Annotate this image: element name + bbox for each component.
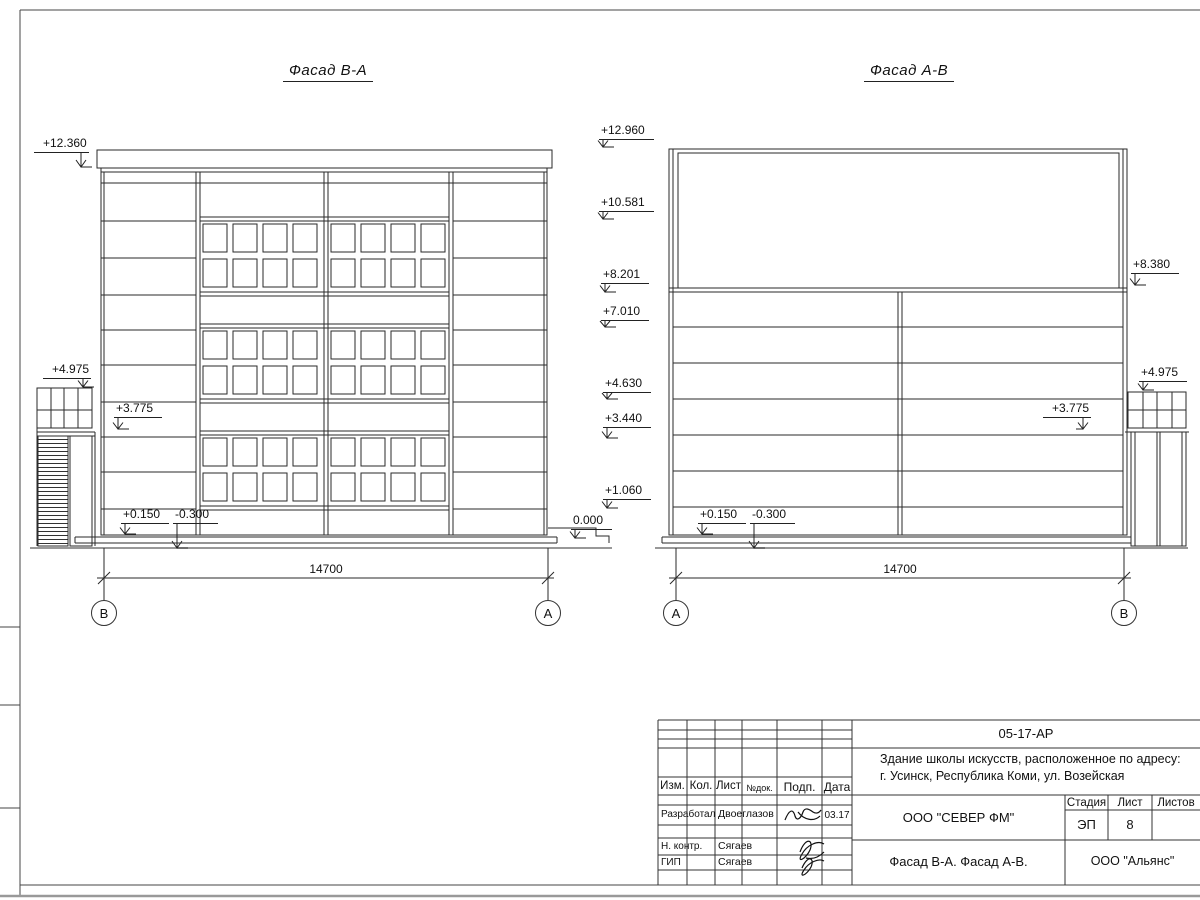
signature-scribbles (785, 809, 824, 875)
elevation-mark: -0.300 (173, 507, 218, 524)
elevation-mark: +8.201 (601, 267, 649, 284)
col-header-podp: Подп. (777, 780, 822, 794)
elevation-mark: 0.000 (571, 513, 612, 530)
col-header-list: Лист (715, 780, 742, 792)
axis-bubble: В (1111, 600, 1137, 626)
axis-bubble: А (535, 600, 561, 626)
elevation-label: +4.975 (43, 362, 91, 379)
elevation-label: -0.300 (173, 507, 218, 524)
elevation-label: +7.010 (601, 304, 649, 321)
elevation-mark: +12.360 (34, 136, 89, 153)
elevation-mark: +4.975 (1139, 365, 1187, 382)
elevation-mark: +10.581 (599, 195, 654, 212)
signature-date: 03.17 (822, 810, 852, 821)
col-header-kol: Кол. (687, 780, 715, 792)
sheet-value: 8 (1108, 817, 1152, 832)
elevation-mark: +4.630 (603, 376, 651, 393)
signature-role: Н. контр. (661, 841, 715, 852)
elevation-label: +8.380 (1131, 257, 1179, 274)
signature-name: Двоеглазов (718, 808, 776, 820)
axis-bubble: А (663, 600, 689, 626)
elevation-mark: +0.150 (698, 507, 746, 524)
col-header-doc: №док. (742, 783, 777, 793)
elevation-mark: +4.975 (43, 362, 91, 379)
elevation-mark: +3.440 (603, 411, 651, 428)
col-header-data: Дата (822, 780, 852, 794)
elevation-label: -0.300 (750, 507, 795, 524)
stage-value: ЭП (1065, 817, 1108, 832)
right-facade-title: Фасад А-В (864, 62, 954, 82)
elevation-mark: +1.060 (603, 483, 651, 500)
sheets-label: Листов (1152, 797, 1200, 809)
signature-name: Сягаев (718, 840, 776, 852)
elevation-label: +3.775 (114, 401, 162, 418)
elevation-mark: +8.380 (1131, 257, 1179, 274)
sheet-label: Лист (1108, 797, 1152, 809)
elevation-label: +0.150 (698, 507, 746, 524)
drawing-sheet: Фасад В-А Фасад А-В +12.360 +4.975 +3.77… (0, 0, 1200, 900)
left-facade-title: Фасад В-А (283, 62, 373, 82)
doc-number: 05-17-АР (852, 726, 1200, 741)
elevation-mark: +7.010 (601, 304, 649, 321)
dimension-label: 14700 (296, 562, 356, 576)
elevation-label: 0.000 (571, 513, 612, 530)
elevation-label: +3.775 (1043, 401, 1091, 418)
designer-company: ООО "СЕВЕР ФМ" (852, 810, 1065, 825)
elevation-mark: +12.960 (599, 123, 654, 140)
elevation-label: +12.960 (599, 123, 654, 140)
contractor-company: ООО "Альянс" (1065, 854, 1200, 868)
project-name-line1: Здание школы искусств, расположенное по … (880, 752, 1196, 766)
elevation-label: +3.440 (603, 411, 651, 428)
elevation-label: +10.581 (599, 195, 654, 212)
signature-role: Разработал (661, 809, 715, 820)
elevation-mark: +3.775 (114, 401, 162, 418)
elevation-label: +4.630 (603, 376, 651, 393)
elevation-label: +1.060 (603, 483, 651, 500)
elevation-label: +4.975 (1139, 365, 1187, 382)
project-name-line2: г. Усинск, Республика Коми, ул. Возейска… (880, 769, 1196, 783)
signature-name: Сягаев (718, 856, 776, 868)
axis-bubble: В (91, 600, 117, 626)
elevation-label: +12.360 (34, 136, 89, 153)
elevation-mark: +0.150 (121, 507, 169, 524)
stage-label: Стадия (1065, 797, 1108, 809)
elevation-label: +8.201 (601, 267, 649, 284)
signature-role: ГИП (661, 857, 715, 868)
col-header-izm: Изм. (658, 780, 687, 792)
elevation-mark: -0.300 (750, 507, 795, 524)
sheet-title: Фасад В-А. Фасад А-В. (852, 854, 1065, 869)
elevation-label: +0.150 (121, 507, 169, 524)
dimension-label: 14700 (870, 562, 930, 576)
elevation-mark: +3.775 (1043, 401, 1091, 418)
